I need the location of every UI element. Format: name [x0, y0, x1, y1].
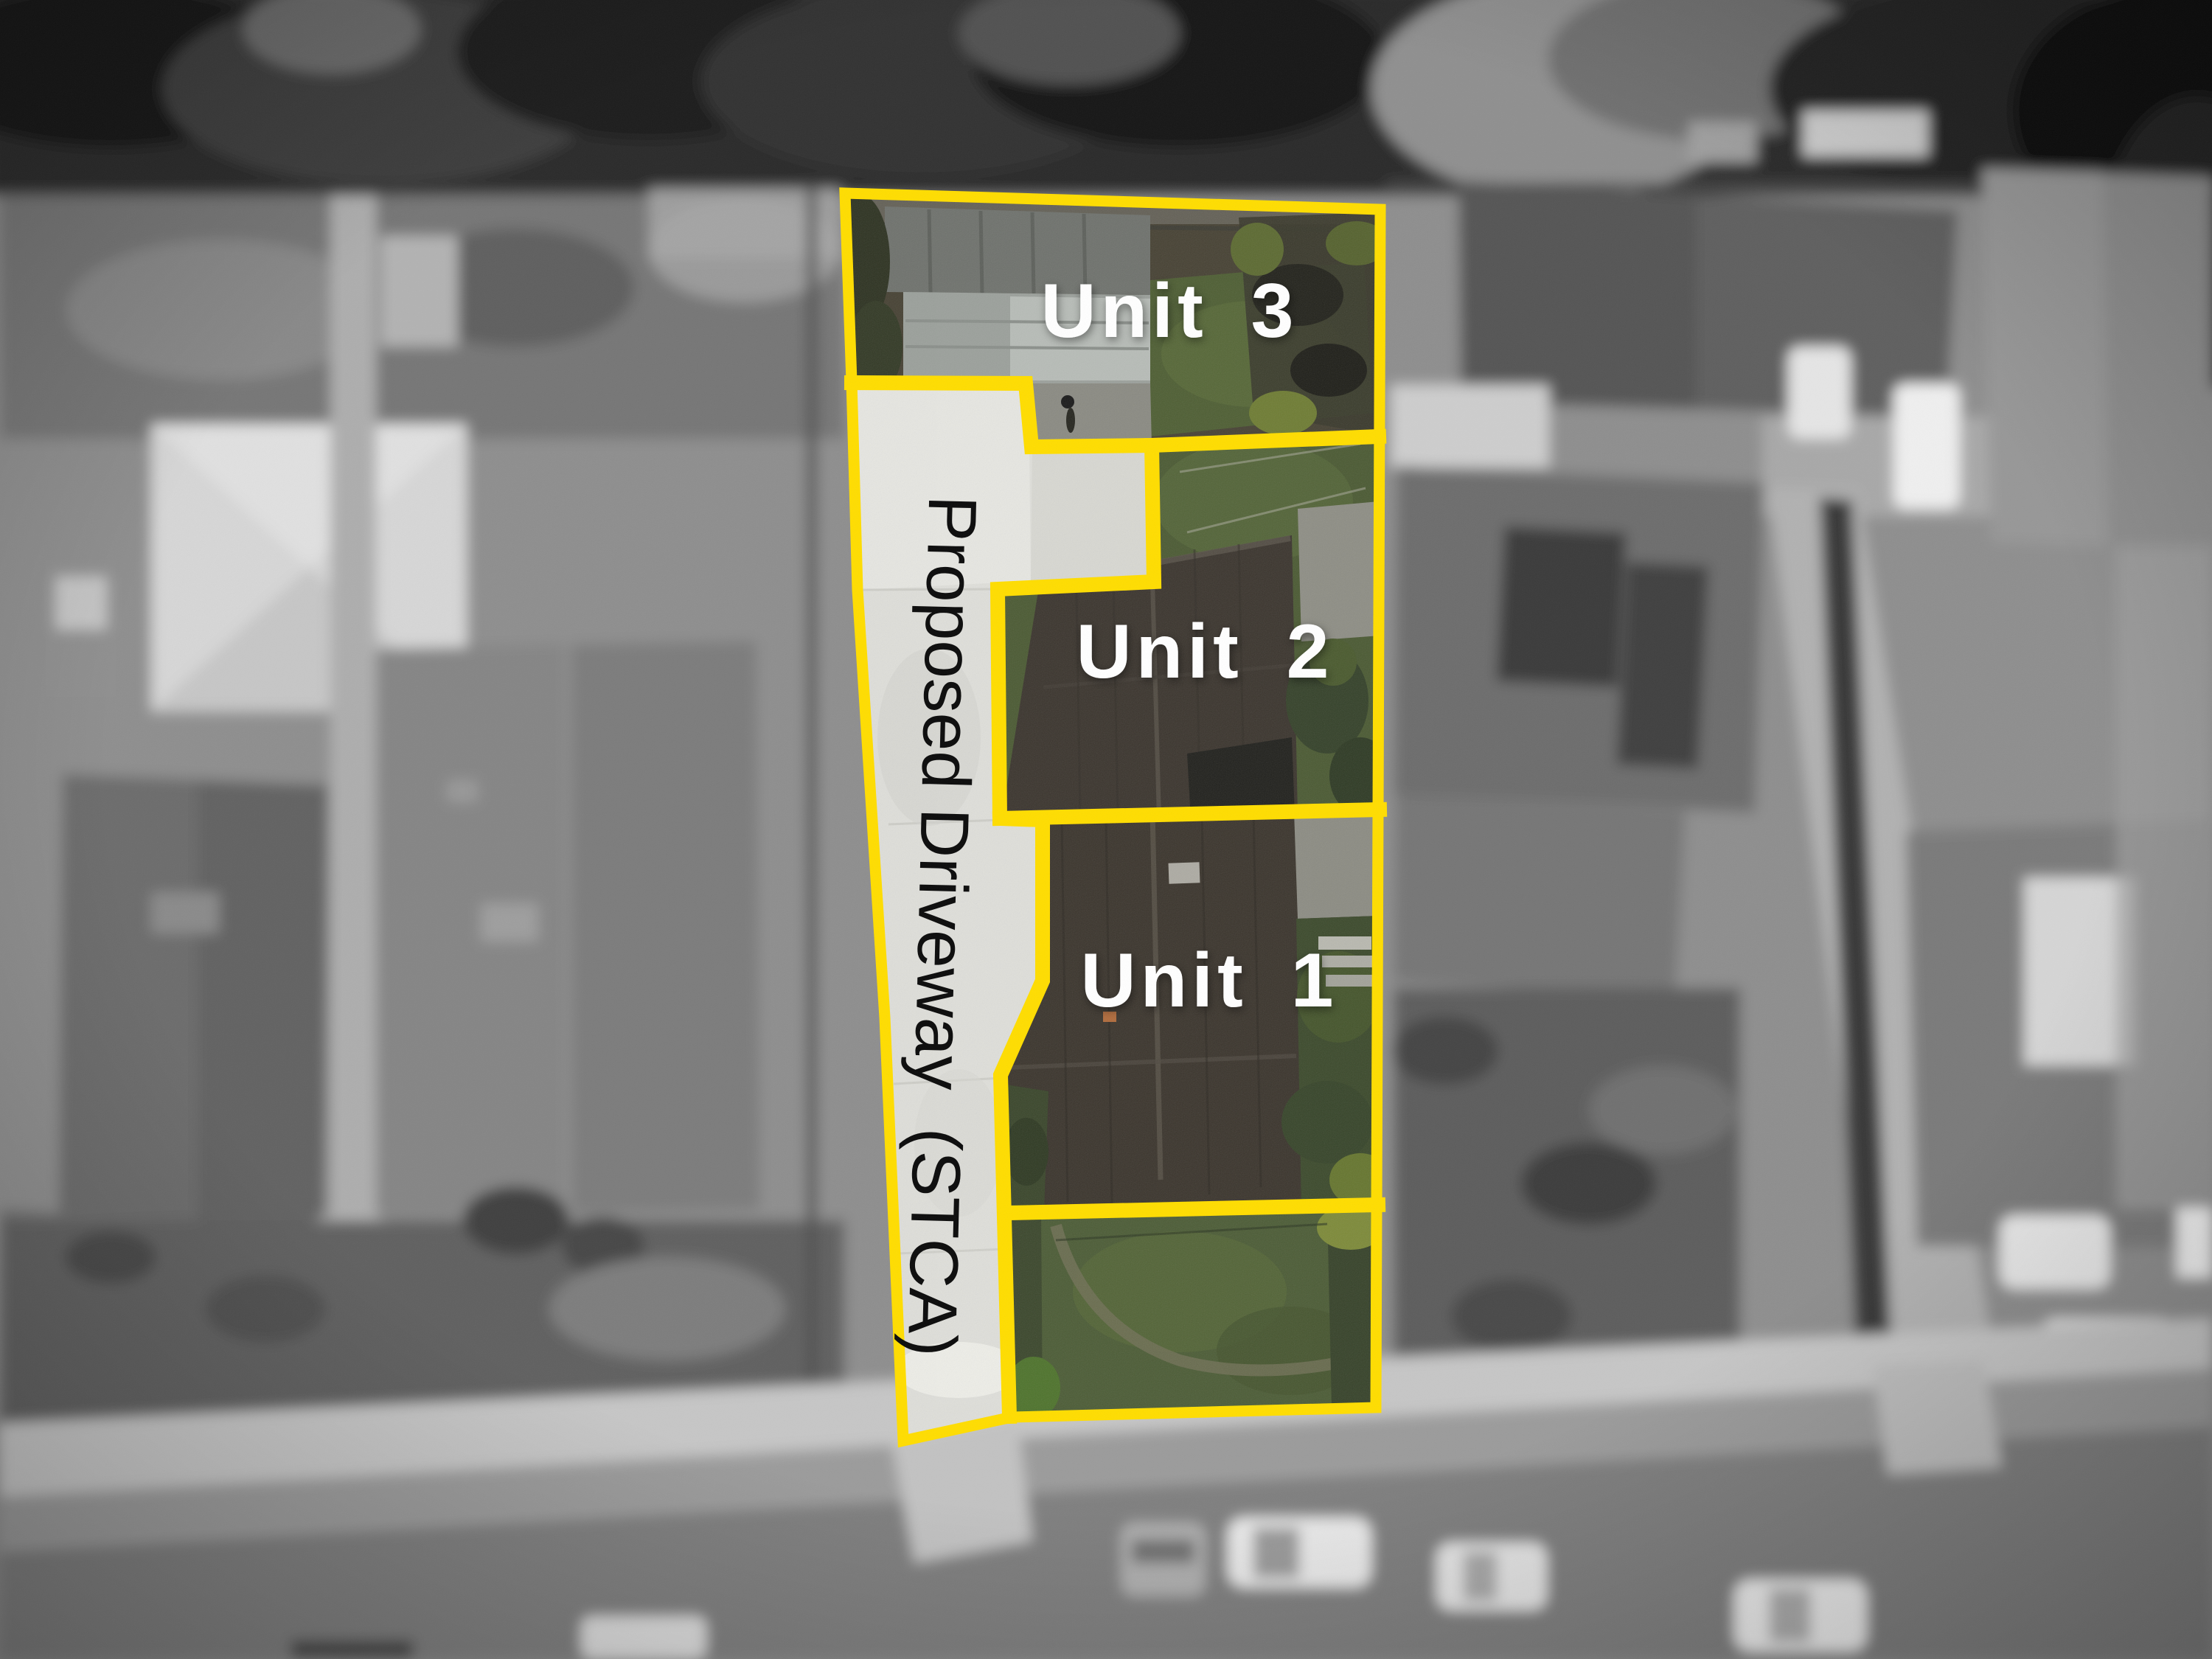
site-plan-svg: Unit 3 Unit 2 Unit 1 Proposed Driveway (… — [0, 0, 2212, 1659]
vignette — [0, 0, 2212, 1659]
aerial-site-photo: Unit 3 Unit 2 Unit 1 Proposed Driveway (… — [0, 0, 2212, 1659]
